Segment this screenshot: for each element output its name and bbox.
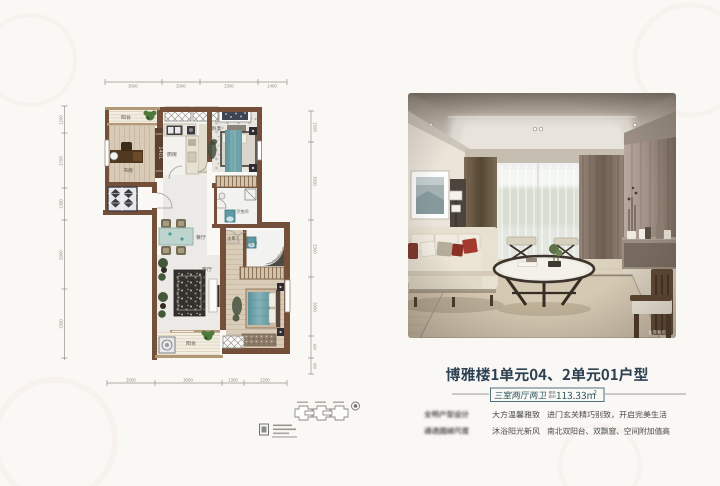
- svg-text:南北双阳台、双飘窗、空间附加值高: 南北双阳台、双飘窗、空间附加值高: [547, 426, 670, 437]
- svg-text:2700: 2700: [59, 156, 65, 166]
- svg-text:1300: 1300: [228, 378, 238, 384]
- svg-text:1300: 1300: [59, 199, 65, 209]
- svg-text:600: 600: [312, 344, 317, 350]
- svg-text:书房: 书房: [123, 167, 133, 174]
- svg-text:面积: 面积: [549, 395, 557, 400]
- svg-text:1800: 1800: [59, 319, 65, 329]
- svg-text:三室两厅两卫: 三室两厅两卫: [494, 389, 548, 402]
- svg-text:1401: 1401: [157, 146, 164, 159]
- svg-text:全明户型设计: 全明户型设计: [424, 409, 469, 420]
- svg-text:113.33m: 113.33m: [556, 387, 596, 402]
- svg-text:厨房: 厨房: [167, 151, 177, 158]
- svg-text:大方温馨雅致: 大方温馨雅致: [492, 410, 540, 421]
- svg-text:通透阔绰尺度: 通透阔绰尺度: [424, 426, 469, 437]
- svg-text:2200: 2200: [260, 378, 270, 384]
- svg-text:卫生间: 卫生间: [236, 209, 249, 215]
- svg-text:3300: 3300: [224, 84, 234, 90]
- svg-text:主卧: 主卧: [227, 236, 237, 242]
- svg-text:5000: 5000: [59, 250, 65, 260]
- svg-text:博雅楼1单元04、2单元01户型: 博雅楼1单元04、2单元01户型: [445, 364, 648, 385]
- svg-text:2300: 2300: [312, 244, 318, 254]
- svg-text:3000: 3000: [312, 176, 318, 186]
- svg-text:2600: 2600: [126, 378, 136, 384]
- svg-text:沐浴阳光新风: 沐浴阳光新风: [492, 426, 540, 437]
- svg-text:客厅: 客厅: [202, 266, 212, 273]
- svg-text:进门玄关精巧别致，开启完美生活: 进门玄关精巧别致，开启完美生活: [547, 410, 667, 421]
- svg-text:3000: 3000: [128, 84, 138, 90]
- svg-text:餐厅: 餐厅: [196, 234, 206, 241]
- svg-text:3000: 3000: [312, 302, 318, 312]
- svg-text:2000: 2000: [176, 84, 186, 90]
- svg-text:主卫: 主卫: [249, 241, 257, 247]
- svg-text:全景看房: 全景看房: [648, 329, 666, 336]
- svg-text:1500: 1500: [312, 122, 318, 132]
- svg-text:1200: 1200: [59, 115, 65, 125]
- svg-text:阳台: 阳台: [121, 114, 131, 121]
- svg-text:阳台: 阳台: [186, 340, 196, 347]
- svg-text:1400: 1400: [267, 84, 277, 90]
- svg-text:卧室: 卧室: [212, 126, 222, 132]
- svg-text:900: 900: [312, 363, 317, 369]
- svg-text:3600: 3600: [183, 378, 193, 384]
